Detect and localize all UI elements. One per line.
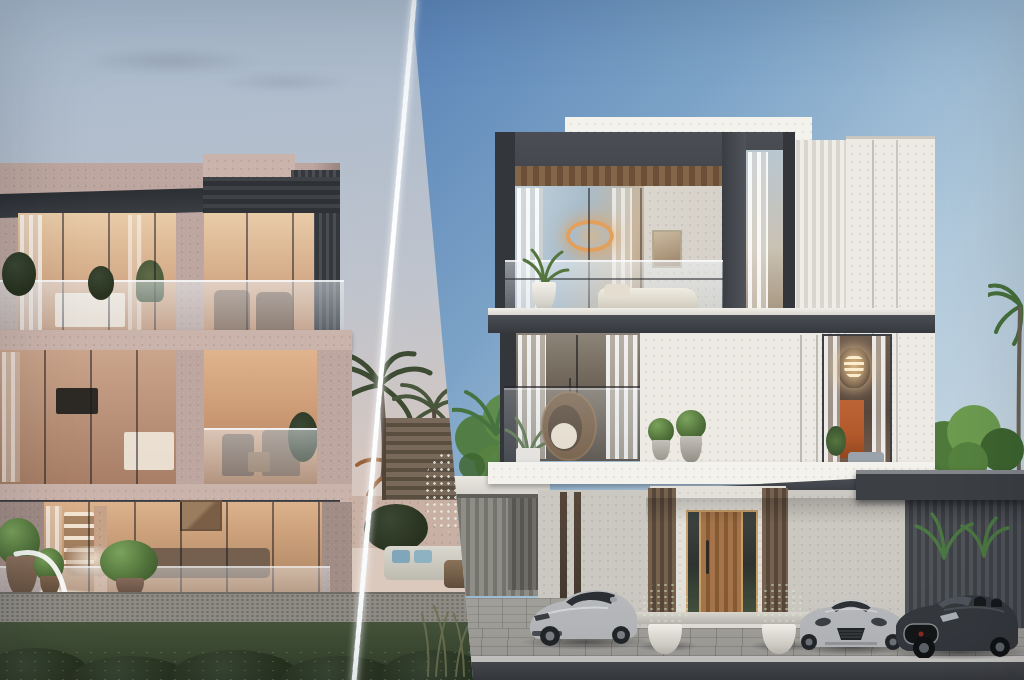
- cloud-wisp: [220, 72, 350, 92]
- glass-balustrade: [0, 280, 344, 334]
- dark-frame-right: [783, 132, 795, 312]
- wall-joint-line: [800, 335, 802, 463]
- daybed-pillow: [604, 284, 630, 298]
- mid-slab-fascia: [488, 315, 935, 333]
- cloud-wisp: [80, 48, 260, 74]
- shrub-speckles: [0, 648, 472, 680]
- entrance-topiary: [641, 582, 689, 630]
- mid-floor-column-right: [317, 350, 352, 484]
- carport-palm-fronds: [914, 492, 1010, 562]
- sofa-cushion: [414, 550, 432, 563]
- wood-slat-soffit: [515, 166, 722, 186]
- glass-mullions: [0, 350, 176, 484]
- wall-joint-line: [816, 335, 818, 463]
- dark-frame-column: [722, 132, 746, 312]
- road: [430, 662, 1024, 680]
- floor-slab: [0, 330, 352, 350]
- mid-balustrade: [204, 428, 317, 486]
- dark-shrub: [364, 504, 428, 552]
- split-villa-render: [0, 0, 1024, 680]
- curtain: [748, 152, 768, 310]
- door-handle: [706, 540, 709, 574]
- carport-roof: [856, 470, 1024, 500]
- dark-convertible-car: [888, 574, 1024, 658]
- balcony-plant: [88, 266, 114, 300]
- mid-balustrade: [504, 388, 640, 464]
- interior-plant-leaves: [826, 426, 846, 456]
- ring-pendant-light: [566, 220, 614, 252]
- canopy-shadow: [646, 498, 910, 524]
- sofa-cushion: [392, 550, 410, 563]
- silver-sports-car: [524, 574, 642, 646]
- pergola-slats: [203, 177, 340, 213]
- mid-floor-column: [176, 350, 204, 484]
- chandelier-tiers: [844, 356, 864, 378]
- balcony-plant: [2, 252, 36, 296]
